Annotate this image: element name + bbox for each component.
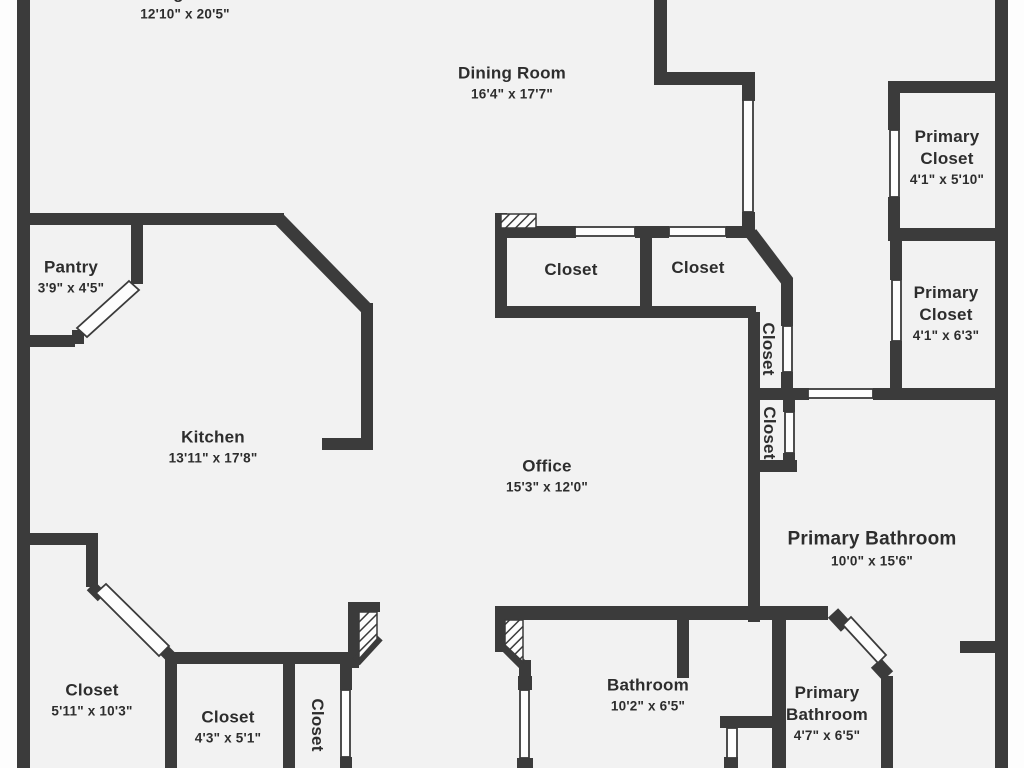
- room-dims: 4'3" x 5'1": [195, 728, 261, 749]
- room-label-kitchen: Kitchen 13'11" x 17'8": [169, 427, 258, 470]
- room-dims: 10'2" x 6'5": [607, 696, 689, 717]
- room-name: Closet: [544, 259, 597, 281]
- room-name: Primary Closet: [891, 282, 1001, 326]
- room-dims: 4'1" x 6'3": [891, 325, 1001, 346]
- room-dims: 16'4" x 17'7": [458, 84, 566, 105]
- room-name: Kitchen: [169, 427, 258, 449]
- room-name: Office: [506, 456, 588, 478]
- room-label-dining-room: Dining Room 16'4" x 17'7": [458, 63, 566, 106]
- hatched-areas: [359, 214, 536, 662]
- room-dims: 12'10" x 20'5": [132, 4, 237, 25]
- room-label-primary-bathroom-small: Primary Bathroom 4'7" x 6'5": [762, 682, 892, 746]
- room-label-closet-bottom-mid: Closet 4'3" x 5'1": [195, 707, 261, 750]
- room-name: Closet: [51, 680, 132, 702]
- room-label-hall-closet-right: Closet: [671, 257, 724, 279]
- room-name: Primary Bathroom: [788, 527, 957, 551]
- room-label-strip-closet-upper: Closet: [757, 322, 779, 375]
- room-name: Primary Bathroom: [762, 682, 892, 726]
- room-name: Primary Closet: [892, 126, 1002, 170]
- room-name: Dining Room: [458, 63, 566, 85]
- room-name: Closet: [757, 322, 779, 375]
- room-dims: 5'11" x 10'3": [51, 701, 132, 722]
- room-name: Pantry: [38, 257, 104, 279]
- room-label-closet-bottom-narrow: Closet: [306, 698, 328, 751]
- room-label-living-room: Living Room 12'10" x 20'5": [132, 0, 237, 25]
- room-name: Closet: [195, 707, 261, 729]
- room-dims: 10'0" x 15'6": [788, 552, 957, 573]
- room-dims: 4'1" x 5'10": [892, 169, 1002, 190]
- room-label-primary-bathroom: Primary Bathroom 10'0" x 15'6": [788, 527, 957, 572]
- floor-plan-drawing: [0, 0, 1024, 768]
- room-name: Closet: [671, 257, 724, 279]
- room-label-closet-bottom-left: Closet 5'11" x 10'3": [51, 680, 132, 723]
- room-label-pantry: Pantry 3'9" x 4'5": [38, 257, 104, 300]
- room-dims: 3'9" x 4'5": [38, 278, 104, 299]
- floor-plan: Living Room 12'10" x 20'5" Dining Room 1…: [0, 0, 1024, 768]
- room-label-bathroom: Bathroom 10'2" x 6'5": [607, 675, 689, 718]
- room-dims: 15'3" x 12'0": [506, 477, 588, 498]
- room-name: Closet: [758, 406, 780, 459]
- room-label-primary-closet-upper: Primary Closet 4'1" x 5'10": [892, 126, 1002, 190]
- room-dims: 4'7" x 6'5": [762, 725, 892, 746]
- room-dims: 13'11" x 17'8": [169, 448, 258, 469]
- room-label-office: Office 15'3" x 12'0": [506, 456, 588, 499]
- room-label-primary-closet-lower: Primary Closet 4'1" x 6'3": [891, 282, 1001, 346]
- room-label-hall-closet-left: Closet: [544, 259, 597, 281]
- room-name: Bathroom: [607, 675, 689, 697]
- room-name: Closet: [306, 698, 328, 751]
- room-label-strip-closet-lower: Closet: [758, 406, 780, 459]
